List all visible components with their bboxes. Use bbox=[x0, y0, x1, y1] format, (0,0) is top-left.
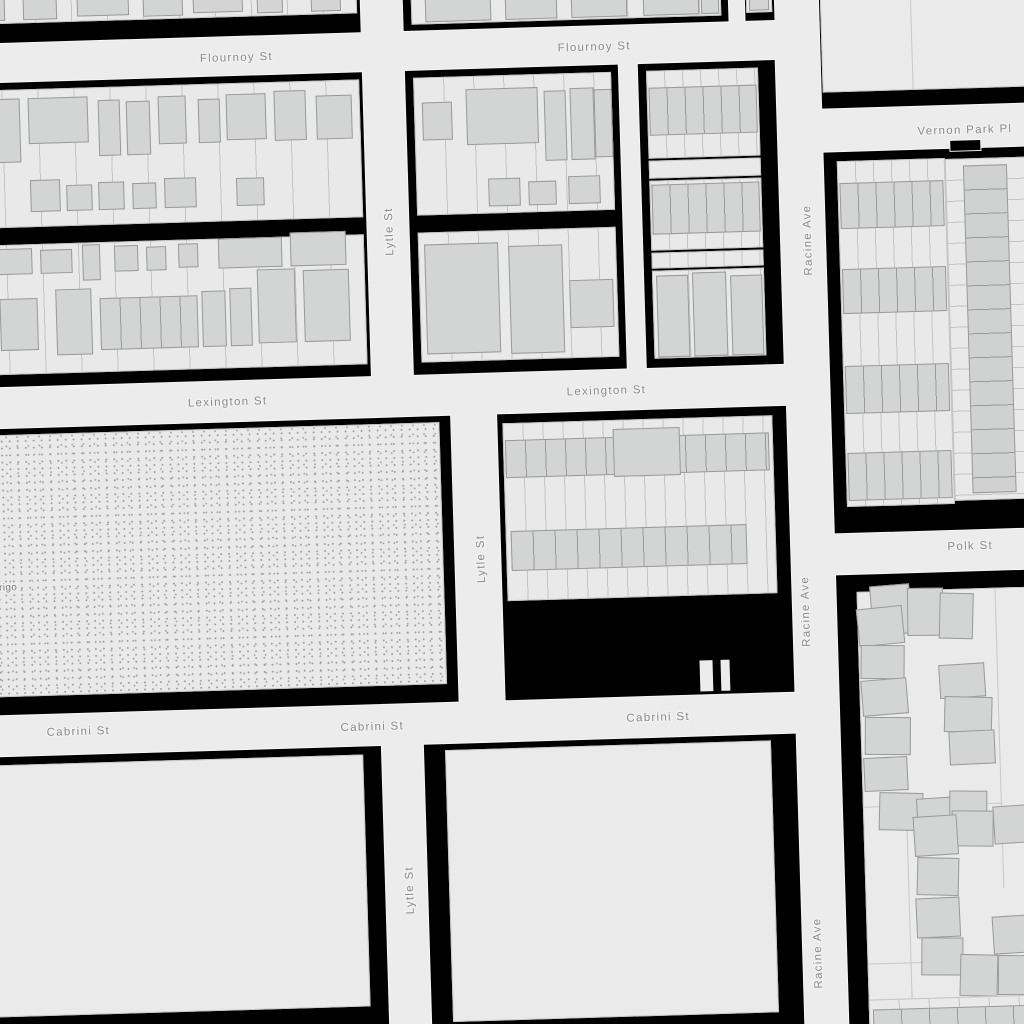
house-building bbox=[944, 696, 993, 733]
rowhouse-strip bbox=[511, 524, 748, 571]
building bbox=[132, 182, 157, 209]
street-label-lytle-3: Lytle St bbox=[403, 866, 416, 915]
street-label-lytle-1: Lytle St bbox=[383, 207, 396, 256]
building bbox=[571, 0, 628, 18]
building bbox=[569, 87, 595, 160]
street-label-racine-2: Racine Ave bbox=[799, 576, 813, 647]
street-polk bbox=[835, 526, 1024, 575]
building bbox=[178, 243, 199, 268]
rowhouse-strip bbox=[847, 450, 952, 501]
street-label-racine-3: Racine Ave bbox=[811, 917, 825, 988]
parcel-row bbox=[651, 249, 763, 268]
building bbox=[568, 175, 601, 204]
house-building bbox=[861, 645, 905, 679]
building-notch bbox=[720, 660, 730, 691]
house-building bbox=[998, 955, 1024, 995]
rowhouse-strip bbox=[845, 363, 950, 414]
house-building bbox=[865, 717, 911, 755]
street-label-cabrini-3: Cabrini St bbox=[626, 711, 690, 725]
open-lot bbox=[0, 755, 371, 1019]
house-building bbox=[921, 937, 963, 975]
building bbox=[465, 87, 539, 145]
park-label-fragment: rigo bbox=[0, 582, 17, 594]
building bbox=[158, 96, 187, 145]
building bbox=[192, 0, 243, 13]
building bbox=[142, 0, 183, 17]
house-building bbox=[992, 804, 1024, 845]
open-lot bbox=[445, 740, 779, 1022]
building bbox=[198, 98, 221, 143]
house-building bbox=[948, 729, 996, 765]
building bbox=[508, 244, 565, 354]
building bbox=[424, 242, 501, 354]
house-building bbox=[938, 662, 986, 699]
street-label-flournoy-1: Flournoy St bbox=[200, 51, 273, 65]
building bbox=[488, 178, 521, 207]
building bbox=[290, 231, 347, 267]
building bbox=[656, 275, 690, 358]
house-building bbox=[913, 814, 959, 857]
map-canvas[interactable]: Flournoy St Flournoy St Vernon Park Pl L… bbox=[0, 0, 1024, 1024]
house-building bbox=[939, 592, 974, 639]
building bbox=[201, 290, 227, 347]
building bbox=[0, 248, 33, 275]
building bbox=[164, 177, 197, 208]
street-label-cabrini-1: Cabrini St bbox=[46, 725, 110, 739]
street-label-lexington-2: Lexington St bbox=[567, 384, 647, 398]
house-building bbox=[992, 914, 1024, 955]
building bbox=[229, 288, 253, 347]
house-building bbox=[959, 954, 998, 997]
building bbox=[66, 184, 93, 211]
building bbox=[257, 268, 297, 343]
building bbox=[146, 246, 167, 271]
building bbox=[730, 274, 764, 355]
building bbox=[316, 95, 353, 140]
street-label-flournoy-2: Flournoy St bbox=[558, 40, 631, 54]
building-notch bbox=[699, 660, 713, 691]
building bbox=[425, 0, 492, 22]
building bbox=[225, 93, 266, 140]
building bbox=[256, 0, 283, 13]
house-building bbox=[917, 857, 960, 896]
parcel bbox=[649, 157, 761, 178]
street-label-polk: Polk St bbox=[947, 540, 993, 553]
building bbox=[76, 0, 129, 17]
building bbox=[505, 0, 558, 20]
house-building bbox=[856, 605, 906, 647]
building bbox=[310, 0, 341, 12]
house-building bbox=[860, 677, 909, 717]
open-lot bbox=[818, 0, 1024, 93]
building bbox=[544, 90, 568, 161]
building bbox=[218, 237, 283, 269]
street-label-lytle-2: Lytle St bbox=[475, 535, 488, 584]
building bbox=[528, 181, 557, 206]
building bbox=[692, 272, 728, 357]
rowhouse-strip bbox=[651, 182, 760, 235]
city-block bbox=[950, 140, 980, 151]
park-arrigo bbox=[0, 422, 447, 699]
building bbox=[749, 0, 770, 11]
building bbox=[40, 249, 73, 274]
building bbox=[55, 288, 93, 355]
building bbox=[236, 177, 265, 206]
rowhouse-strip bbox=[842, 266, 947, 314]
building bbox=[0, 98, 21, 163]
street-label-racine-1: Racine Ave bbox=[801, 204, 815, 275]
building bbox=[114, 245, 139, 272]
building bbox=[28, 96, 89, 144]
building bbox=[22, 0, 57, 20]
building bbox=[569, 279, 614, 328]
building bbox=[701, 0, 720, 14]
building bbox=[98, 99, 122, 156]
house-building bbox=[907, 588, 944, 636]
building bbox=[98, 181, 125, 210]
rowhouse-strip bbox=[839, 180, 944, 229]
building bbox=[30, 179, 61, 212]
building bbox=[643, 0, 700, 16]
building bbox=[82, 244, 101, 281]
building bbox=[422, 102, 453, 141]
building bbox=[593, 89, 613, 158]
street-label-cabrini-2: Cabrini St bbox=[340, 720, 404, 734]
street-label-lexington-1: Lexington St bbox=[188, 395, 268, 409]
rowhouse-strip bbox=[99, 295, 198, 350]
building bbox=[613, 427, 681, 477]
house-building bbox=[863, 756, 909, 792]
building bbox=[273, 90, 306, 141]
house-building bbox=[915, 897, 961, 939]
rowhouse-strip bbox=[648, 85, 757, 136]
map-viewport[interactable]: Flournoy St Flournoy St Vernon Park Pl L… bbox=[0, 0, 1024, 1024]
building bbox=[303, 269, 351, 342]
building bbox=[126, 101, 152, 156]
building bbox=[0, 298, 39, 351]
building bbox=[0, 0, 5, 22]
